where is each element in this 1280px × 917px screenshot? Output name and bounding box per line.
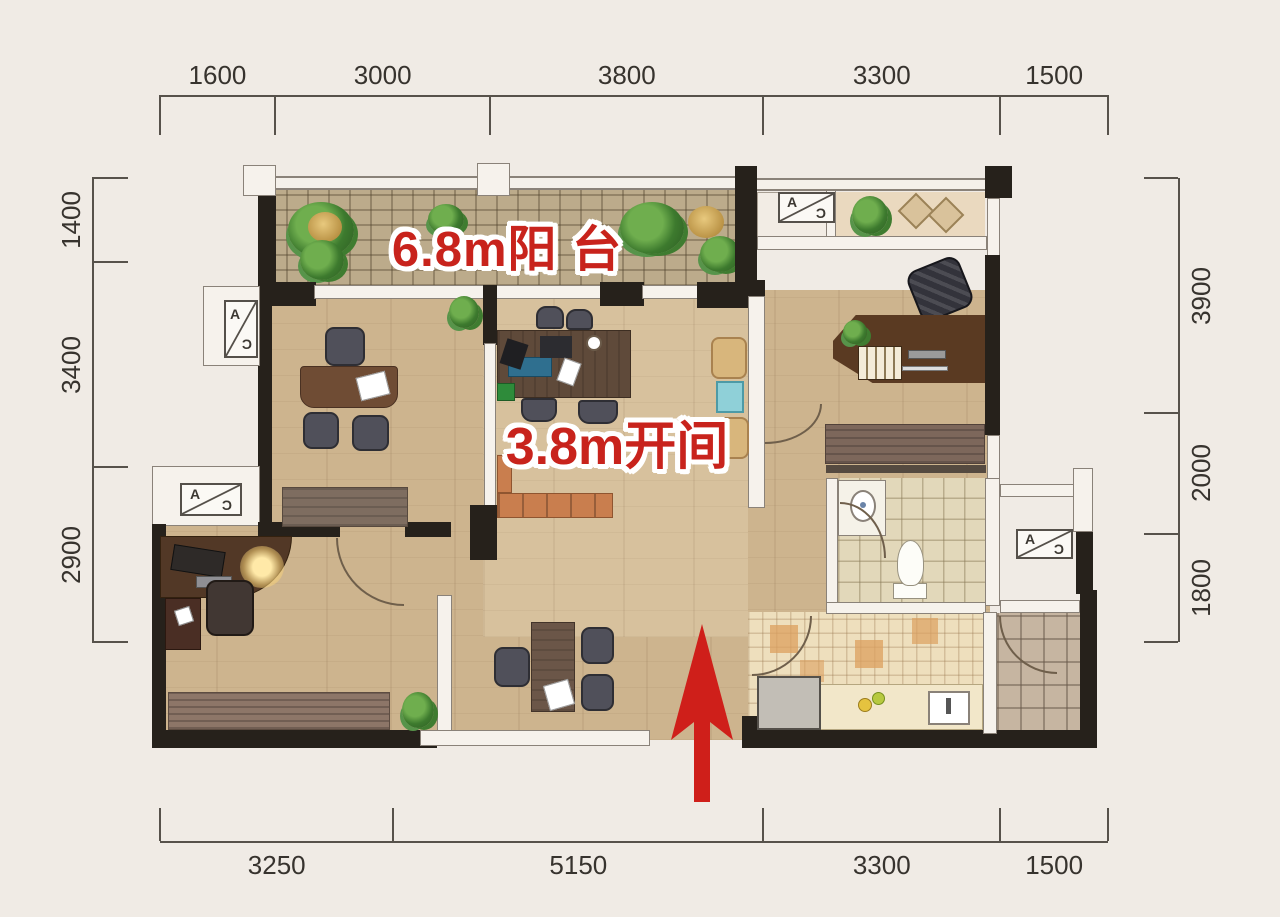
ac-letter: A [230,307,240,321]
desk-plant [843,320,867,344]
chair [581,627,614,664]
entrance-arrow [670,624,734,802]
wall-white [826,478,838,608]
fridge [757,676,821,730]
toilet-bowl [897,540,924,586]
chair [494,647,530,687]
chair [581,674,614,711]
plant [852,196,888,234]
ac-letter: C [242,337,252,351]
wall [258,282,272,535]
armchair [711,337,747,379]
window-band [987,435,1000,481]
wall-white [1000,600,1080,613]
ac-letter: C [1054,542,1064,556]
chair [303,412,339,449]
wall [483,285,497,345]
wall [405,522,451,537]
wall-white [826,602,986,614]
chair [566,309,593,330]
desk-equipment [908,350,946,359]
wall [470,505,497,560]
credenza [282,487,408,527]
fruit [858,698,872,712]
wall [152,730,437,748]
tray [540,336,572,358]
wall-corner-tr [985,166,1012,198]
ac-letter: C [222,498,232,512]
pillar [243,165,276,196]
ac-unit: A C [1016,529,1073,559]
plant [402,692,434,728]
wall-thin [826,465,986,473]
wall [745,730,1000,748]
wall [985,255,1000,435]
pillar [477,163,510,196]
chair [536,306,564,329]
wall-white [437,595,452,735]
ac-letter: C [816,206,826,220]
ac-unit: A C [180,483,242,516]
window-band [642,285,700,299]
ac-letter: A [190,487,200,501]
railing-right [757,178,987,191]
window-band [987,198,1000,256]
kitchen-accent-tile [855,640,883,668]
faucet [946,698,951,714]
balcony-annotation: 6.8m阳 台 [332,210,682,281]
ac-letter: A [787,195,797,209]
long-cabinet [825,424,985,464]
window-band [1000,484,1080,497]
floorplan-canvas: 16003000380033001500 3250515033001500 14… [0,0,1280,917]
partition [748,296,765,508]
books [858,346,902,380]
wall-column [258,180,276,292]
window-band [757,236,987,250]
desk-chair [206,580,254,636]
ac-unit: A C [224,300,258,358]
floor-plan: A C A C A C A C [0,0,1280,917]
balcony-plant-right2 [700,236,740,272]
wardrobe [168,692,390,730]
green-box [497,383,515,401]
fruit [872,692,885,705]
bay-width-annotation: 3.8m开间 [492,404,742,479]
balcony-planter-gold2 [688,206,724,238]
tv-cabinet [497,493,613,518]
office-chair [325,327,365,366]
pillar [1073,468,1093,532]
desk-equipment [902,366,948,371]
cup [586,335,602,351]
window-band [985,478,1000,606]
plant [449,296,479,328]
wall [1076,532,1093,594]
wall-white [983,612,997,734]
wall [1080,590,1097,748]
ac-letter: A [1025,532,1035,546]
kitchen-accent-tile [912,618,938,644]
ac-unit: A C [778,192,835,223]
wall-column [735,180,757,292]
chair [352,415,389,451]
wall-white [420,730,650,746]
basin-drain [860,502,866,508]
wall [600,282,644,306]
